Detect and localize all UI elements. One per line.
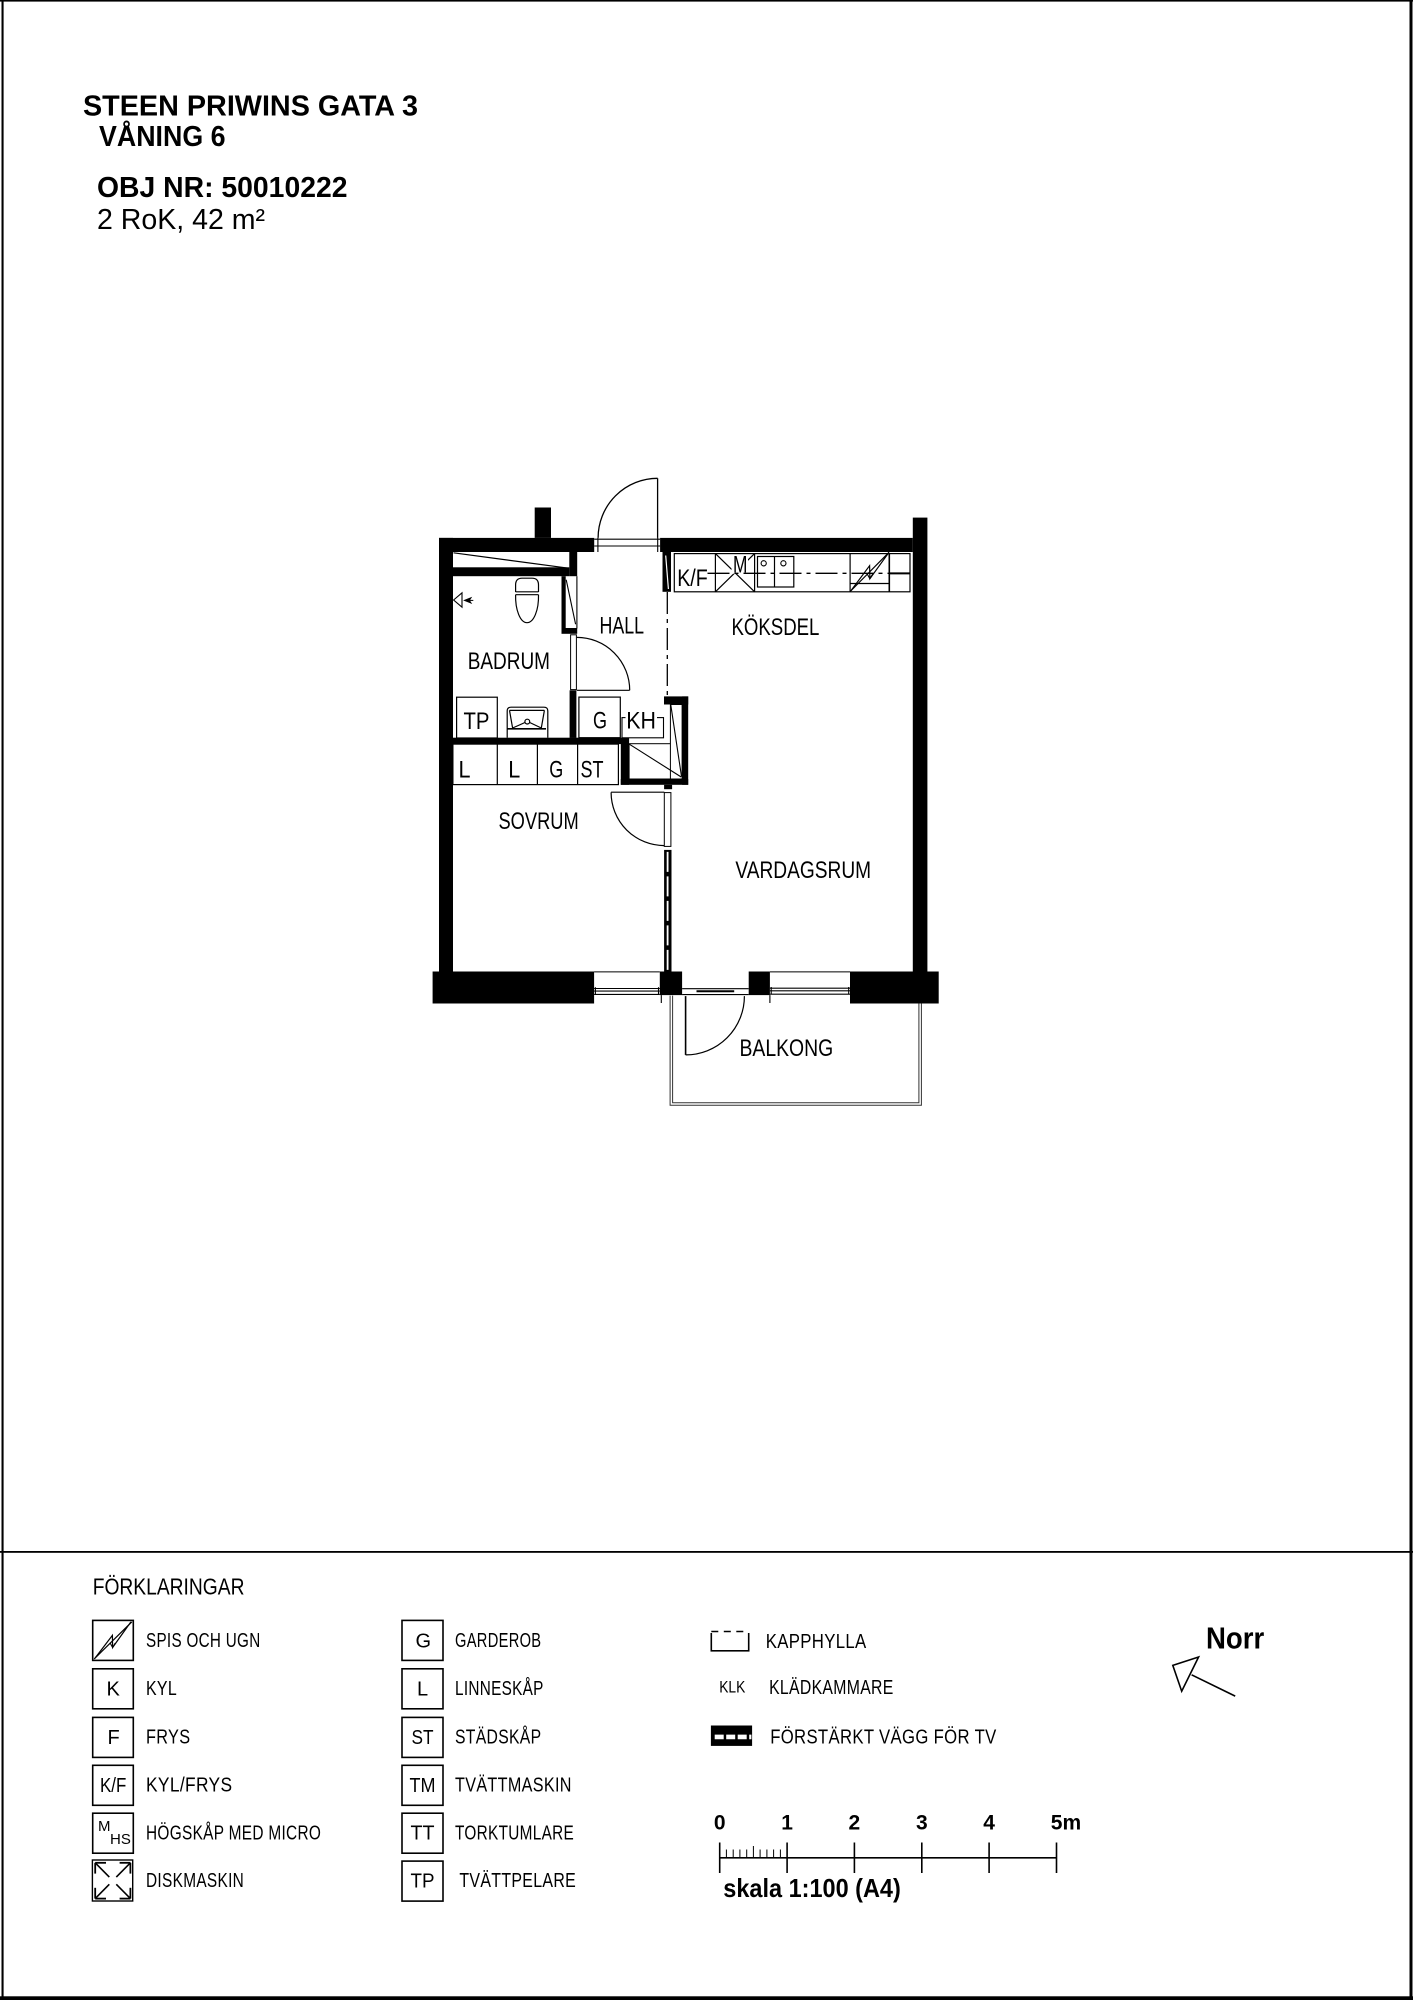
svg-text:G: G — [416, 1630, 432, 1652]
svg-text:SPIS OCH UGN: SPIS OCH UGN — [146, 1630, 261, 1652]
svg-text:FÖRKLARINGAR: FÖRKLARINGAR — [93, 1574, 245, 1600]
svg-text:K: K — [107, 1679, 121, 1701]
svg-text:TP: TP — [411, 1871, 435, 1893]
svg-text:HÖGSKÅP MED MICRO: HÖGSKÅP MED MICRO — [146, 1821, 321, 1844]
svg-text:VARDAGSRUM: VARDAGSRUM — [735, 857, 871, 884]
svg-text:KÖKSDEL: KÖKSDEL — [732, 614, 820, 641]
svg-text:M: M — [733, 552, 747, 579]
svg-text:TM: TM — [410, 1775, 436, 1797]
svg-text:L: L — [459, 757, 471, 784]
svg-text:2: 2 — [849, 1812, 861, 1835]
svg-text:FÖRSTÄRKT VÄGG FÖR TV: FÖRSTÄRKT VÄGG FÖR TV — [770, 1727, 997, 1749]
svg-text:3: 3 — [916, 1812, 928, 1835]
svg-text:K/F: K/F — [100, 1775, 126, 1797]
svg-text:DISKMASKIN: DISKMASKIN — [146, 1870, 244, 1892]
svg-text:Norr: Norr — [1206, 1621, 1264, 1656]
svg-text:2 RoK, 42 m²: 2 RoK, 42 m² — [97, 204, 265, 236]
svg-text:G: G — [549, 757, 563, 784]
svg-text:F: F — [108, 1727, 120, 1749]
svg-text:SOVRUM: SOVRUM — [499, 808, 579, 835]
svg-text:TVÄTTMASKIN: TVÄTTMASKIN — [455, 1775, 572, 1797]
svg-text:L: L — [417, 1679, 428, 1701]
svg-text:GARDEROB: GARDEROB — [455, 1630, 541, 1652]
svg-text:ST: ST — [412, 1727, 434, 1749]
svg-text:L: L — [508, 757, 520, 784]
svg-text:TVÄTTPELARE: TVÄTTPELARE — [459, 1870, 576, 1892]
svg-text:KLÄDKAMMARE: KLÄDKAMMARE — [769, 1677, 894, 1699]
svg-text:OBJ NR: 50010222: OBJ NR: 50010222 — [97, 172, 348, 204]
svg-text:VÅNING 6: VÅNING 6 — [99, 120, 226, 153]
svg-text:K/F: K/F — [677, 565, 708, 592]
svg-text:0: 0 — [714, 1812, 726, 1835]
svg-text:KH: KH — [626, 708, 656, 735]
svg-text:1: 1 — [781, 1812, 793, 1835]
svg-text:LINNESKÅP: LINNESKÅP — [455, 1677, 544, 1700]
svg-text:HS: HS — [110, 1831, 131, 1848]
svg-text:BALKONG: BALKONG — [740, 1035, 834, 1062]
svg-text:5m: 5m — [1051, 1812, 1081, 1835]
svg-text:G: G — [593, 708, 607, 735]
svg-text:M: M — [98, 1818, 111, 1835]
svg-text:TT: TT — [411, 1823, 435, 1845]
svg-text:KAPPHYLLA: KAPPHYLLA — [766, 1631, 867, 1653]
svg-text:skala 1:100 (A4): skala 1:100 (A4) — [723, 1873, 901, 1903]
svg-text:BADRUM: BADRUM — [468, 648, 550, 675]
svg-text:STÄDSKÅP: STÄDSKÅP — [455, 1726, 541, 1749]
svg-text:TP: TP — [464, 708, 490, 735]
svg-text:HALL: HALL — [600, 613, 645, 640]
svg-text:KYL: KYL — [146, 1678, 177, 1700]
svg-text:ST: ST — [581, 757, 604, 784]
svg-text:KYL/FRYS: KYL/FRYS — [146, 1775, 232, 1797]
svg-text:4: 4 — [983, 1812, 995, 1835]
svg-text:STEEN PRIWINS GATA 3: STEEN PRIWINS GATA 3 — [83, 90, 418, 122]
svg-text:TORKTUMLARE: TORKTUMLARE — [455, 1822, 574, 1844]
svg-text:KLK: KLK — [719, 1678, 746, 1697]
svg-text:FRYS: FRYS — [146, 1727, 190, 1749]
